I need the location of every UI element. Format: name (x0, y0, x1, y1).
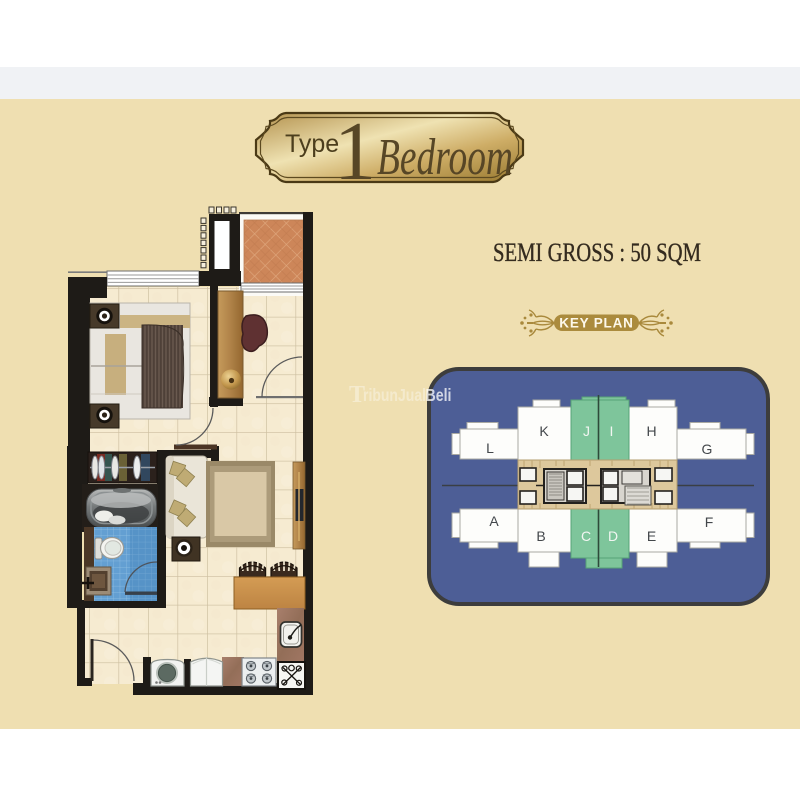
svg-text:A: A (489, 513, 499, 529)
svg-text:I: I (610, 423, 614, 439)
svg-text:ribunJual: ribunJual (363, 385, 426, 405)
svg-text:KEY PLAN: KEY PLAN (559, 316, 633, 331)
svg-text:J: J (583, 423, 590, 439)
svg-text:D: D (608, 528, 618, 544)
svg-text:B: B (536, 528, 545, 544)
svg-text:E: E (647, 528, 656, 544)
svg-text:H: H (646, 423, 656, 439)
svg-text:G: G (702, 441, 713, 457)
svg-text:Beli: Beli (426, 385, 452, 405)
svg-text:Bedroom: Bedroom (377, 129, 513, 186)
svg-text:SEMI GROSS : 50 SQM: SEMI GROSS : 50 SQM (493, 238, 701, 267)
svg-text:K: K (539, 423, 549, 439)
svg-text:C: C (581, 528, 591, 544)
svg-text:Type: Type (285, 130, 339, 158)
svg-text:1: 1 (334, 105, 376, 198)
svg-text:L: L (486, 440, 494, 456)
svg-text:F: F (705, 514, 714, 530)
